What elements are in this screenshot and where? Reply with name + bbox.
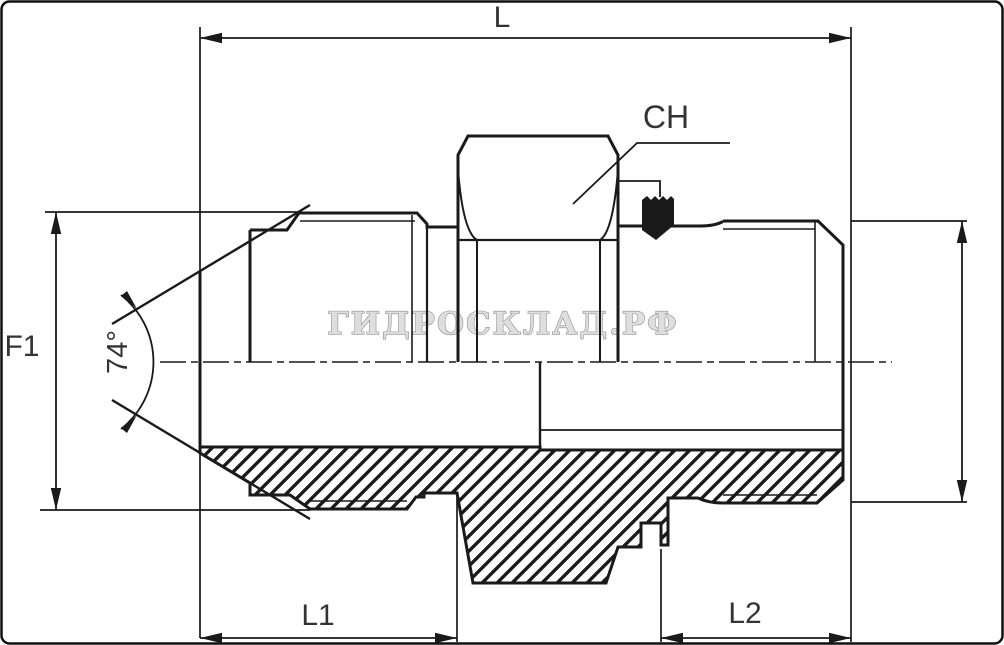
dim-label-ch: CH <box>643 99 689 135</box>
dim-label-l2: L2 <box>728 597 761 630</box>
technical-drawing-canvas: L F1 L1 L2 74° CH ГИДРОСКЛАД.РФ <box>0 0 1004 645</box>
technical-drawing: L F1 L1 L2 74° CH ГИДРОСКЛАД.РФ <box>0 0 1004 645</box>
dim-label-f1: F1 <box>4 330 39 363</box>
dim-label-l: L <box>494 1 511 34</box>
dim-label-l1: L1 <box>301 599 334 632</box>
watermark-text: ГИДРОСКЛАД.РФ <box>327 306 678 342</box>
dim-label-angle: 74° <box>102 330 134 374</box>
